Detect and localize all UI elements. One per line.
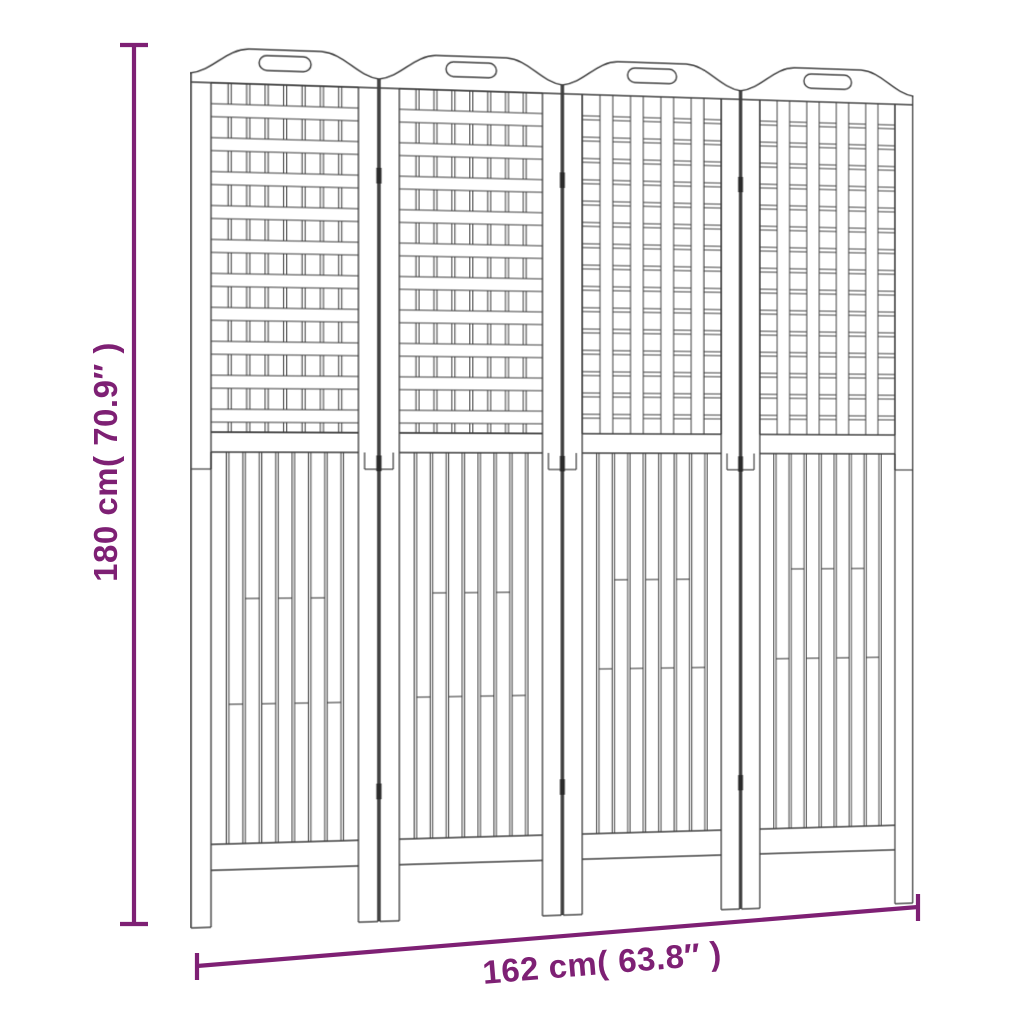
panel-1: [190, 47, 379, 928]
slat-section: [597, 453, 707, 834]
lattice-horizontal-weave: [399, 89, 542, 434]
lattice-horizontal-weave: [211, 83, 358, 433]
height-dimension-label: 180 cm( 70.9″ ): [87, 342, 124, 582]
lattice-vertical-weave: [582, 94, 721, 434]
product-dimension-diagram: 180 cm( 70.9″ ) 162 cm( 63.8″ ): [0, 0, 1024, 1024]
room-divider-3d-wrap: [190, 43, 914, 930]
panel-4: [741, 66, 914, 909]
height-dimension: 180 cm( 70.9″ ): [87, 45, 148, 924]
slat-section: [774, 454, 881, 829]
lattice-vertical-weave: [760, 100, 895, 435]
width-dimension-label: 162 cm( 63.8″ ): [481, 934, 723, 991]
room-divider-drawing: [190, 43, 914, 930]
panel-2: [379, 53, 562, 921]
slat-section: [226, 452, 343, 844]
panel-3: [562, 60, 740, 915]
slat-section: [414, 453, 528, 839]
